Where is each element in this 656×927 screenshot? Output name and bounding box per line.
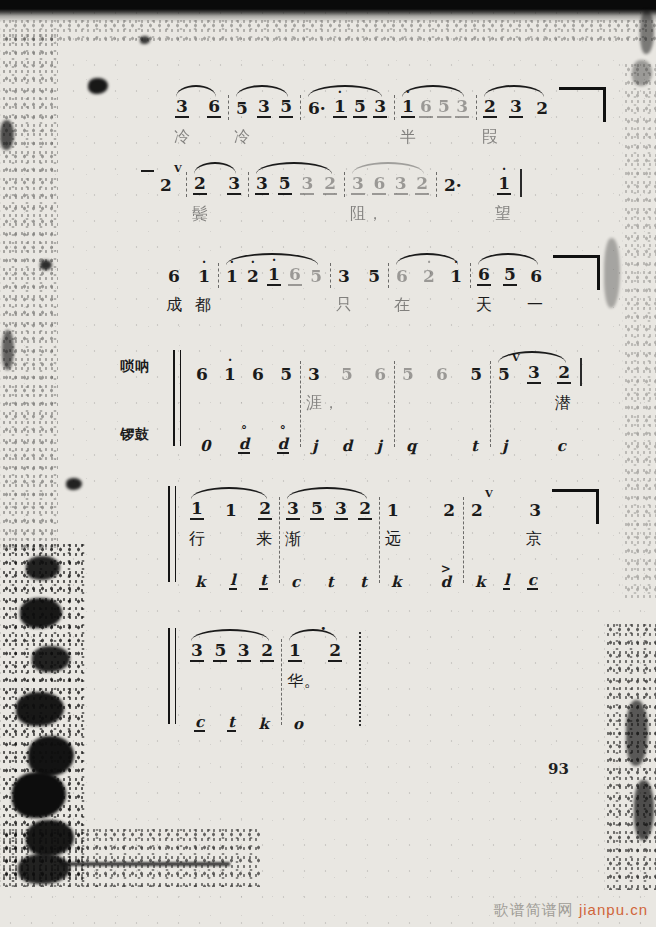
glyph: 5 (353, 97, 367, 118)
lyric-char: 一 (527, 295, 544, 326)
glyph: 1 (267, 265, 281, 286)
note: 2 (258, 490, 272, 520)
ink-blotch (88, 78, 108, 94)
glyph: 3 (237, 641, 251, 662)
note: 6 (195, 356, 209, 384)
glyph: l (229, 572, 237, 590)
measure: 112行来klt (183, 486, 279, 592)
measure: 3532 (248, 161, 344, 235)
noise-band (622, 60, 656, 600)
percussion-line: klc (463, 560, 549, 592)
note: 3 (527, 354, 541, 384)
measure: 5V32潜jc (490, 350, 578, 456)
measure: ·12华。o (281, 628, 349, 734)
glyph: 0 (199, 438, 211, 454)
percussion-line: ctk (183, 702, 281, 734)
glyph: 6 (529, 267, 543, 286)
glyph: t (359, 574, 368, 590)
glyph: l (503, 572, 511, 590)
lyric-text: 行来 (183, 520, 279, 560)
glyph: d (277, 436, 290, 454)
glyph: 1 (197, 267, 211, 286)
glyph: 5 (278, 174, 292, 195)
lyric-text: 只 (330, 286, 388, 326)
glyph: 2 (358, 499, 372, 520)
glyph: 3 (351, 174, 365, 195)
lyric-text: 半 (394, 118, 476, 158)
note-line: 565 (394, 351, 490, 384)
note: 3 (255, 165, 269, 195)
ink-streak (60, 862, 230, 866)
percussion-syllable: t (259, 563, 268, 590)
glyph: 1 (190, 499, 204, 520)
measure: 232叚 (476, 84, 556, 158)
measure: 2··1望 (436, 161, 518, 235)
lyric-text: 阻， (344, 195, 436, 235)
glyph: 3 (257, 97, 271, 118)
breath-mark: V (174, 163, 182, 174)
glyph: 3 (286, 499, 300, 520)
system-bracket (173, 350, 181, 446)
note: 1 (386, 492, 400, 520)
glyph: o (292, 716, 304, 732)
note-line: 6·2·1 (388, 253, 470, 286)
note: 3 (509, 88, 523, 118)
note-line: 2··1 (436, 162, 518, 195)
glyph: 6 (373, 365, 387, 384)
note: 6 (435, 356, 449, 384)
lyric-text (218, 286, 330, 326)
lyric-text (300, 118, 394, 158)
glyph: 5 (309, 267, 323, 286)
glyph: j (311, 438, 318, 454)
glyph: 1 (288, 641, 302, 662)
glyph: 3 (255, 174, 269, 195)
lyric-text (152, 195, 186, 235)
note: 6 (395, 258, 409, 286)
glyph: 3 (227, 174, 241, 195)
note: 6 (372, 165, 386, 195)
measure: 565qt (394, 350, 490, 456)
glyph: c (556, 438, 567, 454)
glyph: 2 (535, 99, 549, 118)
fermata-dot: · (320, 619, 326, 638)
glyph: 2 (422, 267, 436, 286)
lyric-text: 望 (436, 195, 518, 235)
glyph: t (227, 714, 236, 732)
note: 5 (310, 490, 324, 520)
percussion-syllable: o (292, 707, 304, 732)
note-line: 5V32 (490, 351, 578, 384)
note: 3 (175, 88, 189, 118)
lyric-char: 天 (476, 295, 493, 326)
glyph: 6 (477, 265, 491, 286)
note-line: 6·1 (160, 253, 218, 286)
glyph: d (238, 436, 251, 454)
note: 2 (328, 632, 342, 662)
glyph: t (259, 572, 268, 590)
glyph: t (470, 438, 479, 454)
system-bracket (168, 486, 176, 582)
watermark-site-name: 歌谱简谱网 (494, 901, 574, 918)
glyph: 6 (195, 365, 209, 384)
note-line: 112 (183, 487, 279, 520)
note: ·2 (246, 258, 260, 286)
glyph: 2 (328, 641, 342, 662)
glyph: 6 (207, 97, 221, 118)
glyph: t (326, 574, 335, 590)
glyph: 1 (449, 267, 463, 286)
percussion-line: qt (394, 424, 490, 456)
lyric-text: 冷 (228, 118, 300, 158)
measure: 3632阻， (344, 161, 436, 235)
lyric-char: 成 (166, 295, 183, 326)
glyph: 3 (528, 501, 542, 520)
measure: 6··153 (300, 84, 394, 158)
measure: 3532ctk (183, 628, 281, 734)
note: 2· (443, 167, 463, 195)
noise-band (0, 30, 58, 550)
note: 3 (334, 490, 348, 520)
lyric-text (188, 384, 300, 424)
measure: 2V (152, 161, 186, 235)
glyph: 1 (225, 267, 239, 286)
glyph: 5 (340, 365, 354, 384)
glyph: 6 (251, 365, 265, 384)
line-end-barline (580, 358, 582, 386)
note: 5 (401, 356, 415, 384)
measure: 12远k>d (379, 486, 463, 592)
measure: ·1·2·165 (218, 252, 330, 326)
lyric-text: 鬓 (186, 195, 248, 235)
glyph: 2 (557, 363, 571, 384)
note: 2V (470, 492, 484, 520)
glyph: 1 (333, 97, 347, 118)
note-line: 232 (476, 85, 556, 118)
lyric-text: 远 (379, 520, 463, 560)
glyph: 2 (323, 174, 337, 195)
noise-band (0, 16, 656, 42)
glyph: 5 (497, 365, 511, 384)
line-end-mark (553, 255, 600, 290)
glyph: 3 (509, 97, 523, 118)
percussion-syllable: l (229, 563, 237, 590)
glyph: d (440, 574, 453, 590)
percussion-syllable: °d (277, 427, 290, 454)
glyph: 3 (175, 97, 189, 118)
measure: 36冷 (168, 84, 228, 158)
note-line: 35 (330, 253, 388, 286)
glyph: 6 (395, 267, 409, 286)
lyric-char: 来 (256, 529, 273, 560)
lyric-text: 潜 (490, 384, 578, 424)
measure-row: 6·1650°d°d356涯，jdj565qt5V32潜jc (188, 350, 578, 456)
note: 3 (528, 492, 542, 520)
percussion-line: k>d (379, 560, 463, 592)
percussion-line: o (281, 702, 349, 734)
glyph: 6 (372, 174, 386, 195)
note: 5 (278, 165, 292, 195)
note: 2 (193, 165, 207, 195)
note: 5V (497, 356, 511, 384)
ink-blotch (66, 478, 82, 490)
note-line: 12 (379, 487, 463, 520)
glyph: 2 (260, 641, 274, 662)
note: 3 (190, 632, 204, 662)
percussion-line: jc (490, 424, 578, 456)
measure: 535冷 (228, 84, 300, 158)
note: 6 (288, 256, 302, 286)
glyph: 2 (193, 174, 207, 195)
note: 6· (307, 90, 327, 118)
glyph: k (390, 574, 402, 590)
measure-row: 3532ctk·12华。o (183, 628, 349, 734)
note: 3 (237, 632, 251, 662)
percussion-syllable: j (311, 429, 318, 454)
lyric-text (183, 662, 281, 702)
note: 3 (286, 490, 300, 520)
note: 3 (257, 88, 271, 118)
glyph: 1 (224, 501, 238, 520)
glyph: 3 (337, 267, 351, 286)
lyric-char: 行 (189, 529, 206, 560)
percussion-syllable: k (194, 565, 206, 590)
glyph: 6 (167, 267, 181, 286)
note: 2 (557, 354, 571, 384)
glyph: 2· (443, 176, 463, 195)
note: 2V (159, 167, 173, 195)
note: 5 (235, 90, 249, 118)
glyph: j (501, 438, 508, 454)
note-line: 2V (152, 162, 186, 195)
system-bracket (168, 628, 176, 724)
glyph: 2 (470, 501, 484, 520)
glyph: 5 (213, 641, 227, 662)
note: 1 (288, 632, 302, 662)
note: ·1 (267, 256, 281, 286)
glyph: j (376, 438, 383, 454)
note-line: ·1·2·165 (218, 253, 330, 286)
lyric-text: 涯， (300, 384, 394, 424)
note: 5 (437, 88, 451, 118)
glyph: k (194, 574, 206, 590)
ink-blotch (140, 36, 150, 44)
percussion-line: jdj (300, 424, 394, 456)
measure: 23鬓 (186, 161, 248, 235)
lyric-text (394, 384, 490, 424)
note: 3 (227, 165, 241, 195)
page-number: 93 (548, 760, 569, 778)
percussion-syllable: 0 (199, 429, 211, 454)
glyph: c (194, 714, 205, 732)
glyph: 2 (442, 501, 456, 520)
measure-row: 2V23鬓35323632阻，2··1望 (152, 161, 518, 235)
note: 3 (394, 165, 408, 195)
note: 1 (224, 492, 238, 520)
percussion-syllable: k (390, 565, 402, 590)
glyph: 3 (334, 499, 348, 520)
scanned-score-page: 36冷535冷6··153·1653半232叚2V23鬓35323632阻，2·… (0, 0, 656, 927)
note: ·1 (401, 88, 415, 118)
note: 3 (351, 165, 365, 195)
percussion-syllable: c (194, 705, 205, 732)
note: 1 (190, 490, 204, 520)
glyph: 1 (401, 97, 415, 118)
glyph: 2 (159, 176, 173, 195)
glyph: 5 (437, 97, 451, 118)
lyric-text: 叚 (476, 118, 556, 158)
glyph: d (341, 438, 354, 454)
music-system: 112行来klt3532渐ctt12远k>d2V3京klc (168, 486, 599, 592)
glyph: 5 (401, 365, 415, 384)
note: 3 (337, 258, 351, 286)
note: 2 (483, 88, 497, 118)
lyric-text (248, 195, 344, 235)
note: 2 (535, 90, 549, 118)
measure: ·1653半 (394, 84, 476, 158)
breath-mark: V (485, 488, 493, 499)
glyph: 6· (307, 99, 327, 118)
glyph: 2 (483, 97, 497, 118)
glyph: c (290, 574, 301, 590)
lyric-text: 华。 (281, 662, 349, 702)
note: 5 (340, 356, 354, 384)
measure: 3532渐ctt (279, 486, 379, 592)
percussion-syllable: c (556, 429, 567, 454)
note: 3 (455, 88, 469, 118)
note: 6 (251, 356, 265, 384)
lyric-char: 都 (195, 295, 212, 326)
percussion-syllable: t (227, 705, 236, 732)
note: 3 (300, 165, 314, 195)
instrument-label-luogu: 锣鼓 (120, 426, 166, 444)
lyric-text: 冷 (168, 118, 228, 158)
glyph: 2 (415, 174, 429, 195)
glyph: 5 (503, 265, 517, 286)
glyph: 2 (258, 499, 272, 520)
lyric-text: 京 (463, 520, 549, 560)
note: 5 (213, 632, 227, 662)
percussion-line: 0°d°d (188, 424, 300, 456)
lyric-text: 在 (388, 286, 470, 326)
note: ·1 (197, 258, 211, 286)
note: ·1 (225, 258, 239, 286)
note: 6 (477, 256, 491, 286)
glyph: 3 (190, 641, 204, 662)
glyph: 3 (373, 97, 387, 118)
glyph: 5 (279, 365, 293, 384)
glyph: c (527, 572, 538, 590)
line-end-mark (559, 87, 606, 122)
note: 5 (367, 258, 381, 286)
music-system: 唢呐锣鼓6·1650°d°d356涯，jdj565qt5V32潜jc (120, 350, 582, 456)
glyph: k (474, 574, 486, 590)
percussion-syllable: t (326, 565, 335, 590)
measure: 35只 (330, 252, 388, 326)
note: 3 (373, 88, 387, 118)
breath-mark: V (512, 352, 520, 363)
percussion-syllable: k (258, 707, 270, 732)
percussion-line: ctt (279, 560, 379, 592)
instrument-labels: 唢呐锣鼓 (120, 350, 166, 448)
glyph: 3 (455, 97, 469, 118)
glyph: k (258, 716, 270, 732)
note: ·1 (449, 258, 463, 286)
glyph: 3 (307, 365, 321, 384)
note: 2 (260, 632, 274, 662)
line-end-barline (520, 169, 522, 197)
percussion-line: klt (183, 560, 279, 592)
lyric-text: 渐 (279, 520, 379, 560)
glyph: 3 (394, 174, 408, 195)
note: ·1 (223, 356, 237, 384)
glyph: 6 (435, 365, 449, 384)
measure: 6·2·1在 (388, 252, 470, 326)
note: 2 (323, 165, 337, 195)
percussion-syllable: c (527, 563, 538, 590)
percussion-syllable: q (405, 429, 418, 454)
percussion-syllable: j (376, 429, 383, 454)
music-system: 3532ctk·12华。o (168, 628, 361, 734)
music-system: 2V23鬓35323632阻，2··1望 (152, 161, 522, 235)
glyph: 3 (300, 174, 314, 195)
ink-blotch (640, 10, 654, 54)
instrument-label-suona: 唢呐 (120, 358, 166, 376)
measure: 356涯，jdj (300, 350, 394, 456)
note: 2 (415, 165, 429, 195)
lyric-text: 天一 (470, 286, 550, 326)
note: 5 (279, 88, 293, 118)
glyph: 6 (288, 265, 302, 286)
glyph: 3 (527, 363, 541, 384)
note: 6 (207, 88, 221, 118)
note: ·1 (333, 88, 347, 118)
glyph: 5 (235, 99, 249, 118)
glyph: 1 (497, 174, 511, 195)
note: 3 (307, 356, 321, 384)
note: 5 (353, 88, 367, 118)
line-end-mark (552, 489, 599, 524)
note: 5 (503, 256, 517, 286)
note-line: 356 (300, 351, 394, 384)
measure: 2V3京klc (463, 486, 549, 592)
percussion-syllable: d (341, 429, 354, 454)
note-line: 535 (228, 85, 300, 118)
percussion-syllable: °d (238, 427, 251, 454)
line-end-dotted-barline (359, 632, 361, 726)
measure: 6·1成都 (160, 252, 218, 326)
glyph: 5 (367, 267, 381, 286)
tie-mark (141, 170, 154, 172)
note: ·1 (497, 165, 511, 195)
percussion-syllable: c (290, 565, 301, 590)
glyph: 1 (386, 501, 400, 520)
percussion-syllable: t (470, 429, 479, 454)
measure-row: 112行来klt3532渐ctt12远k>d2V3京klc (183, 486, 549, 592)
glyph: 5 (310, 499, 324, 520)
glyph: 6 (419, 97, 433, 118)
note: 6 (419, 88, 433, 118)
note: ·2 (422, 258, 436, 286)
percussion-syllable: j (501, 429, 508, 454)
ink-blotch (604, 238, 620, 308)
music-system: 36冷535冷6··153·1653半232叚 (168, 84, 606, 158)
watermark: 歌谱简谱网 jianpu.cn (494, 901, 648, 920)
note: 5 (279, 356, 293, 384)
note-line: 2V3 (463, 487, 549, 520)
measure: 6·1650°d°d (188, 350, 300, 456)
note-line: 656 (470, 253, 550, 286)
